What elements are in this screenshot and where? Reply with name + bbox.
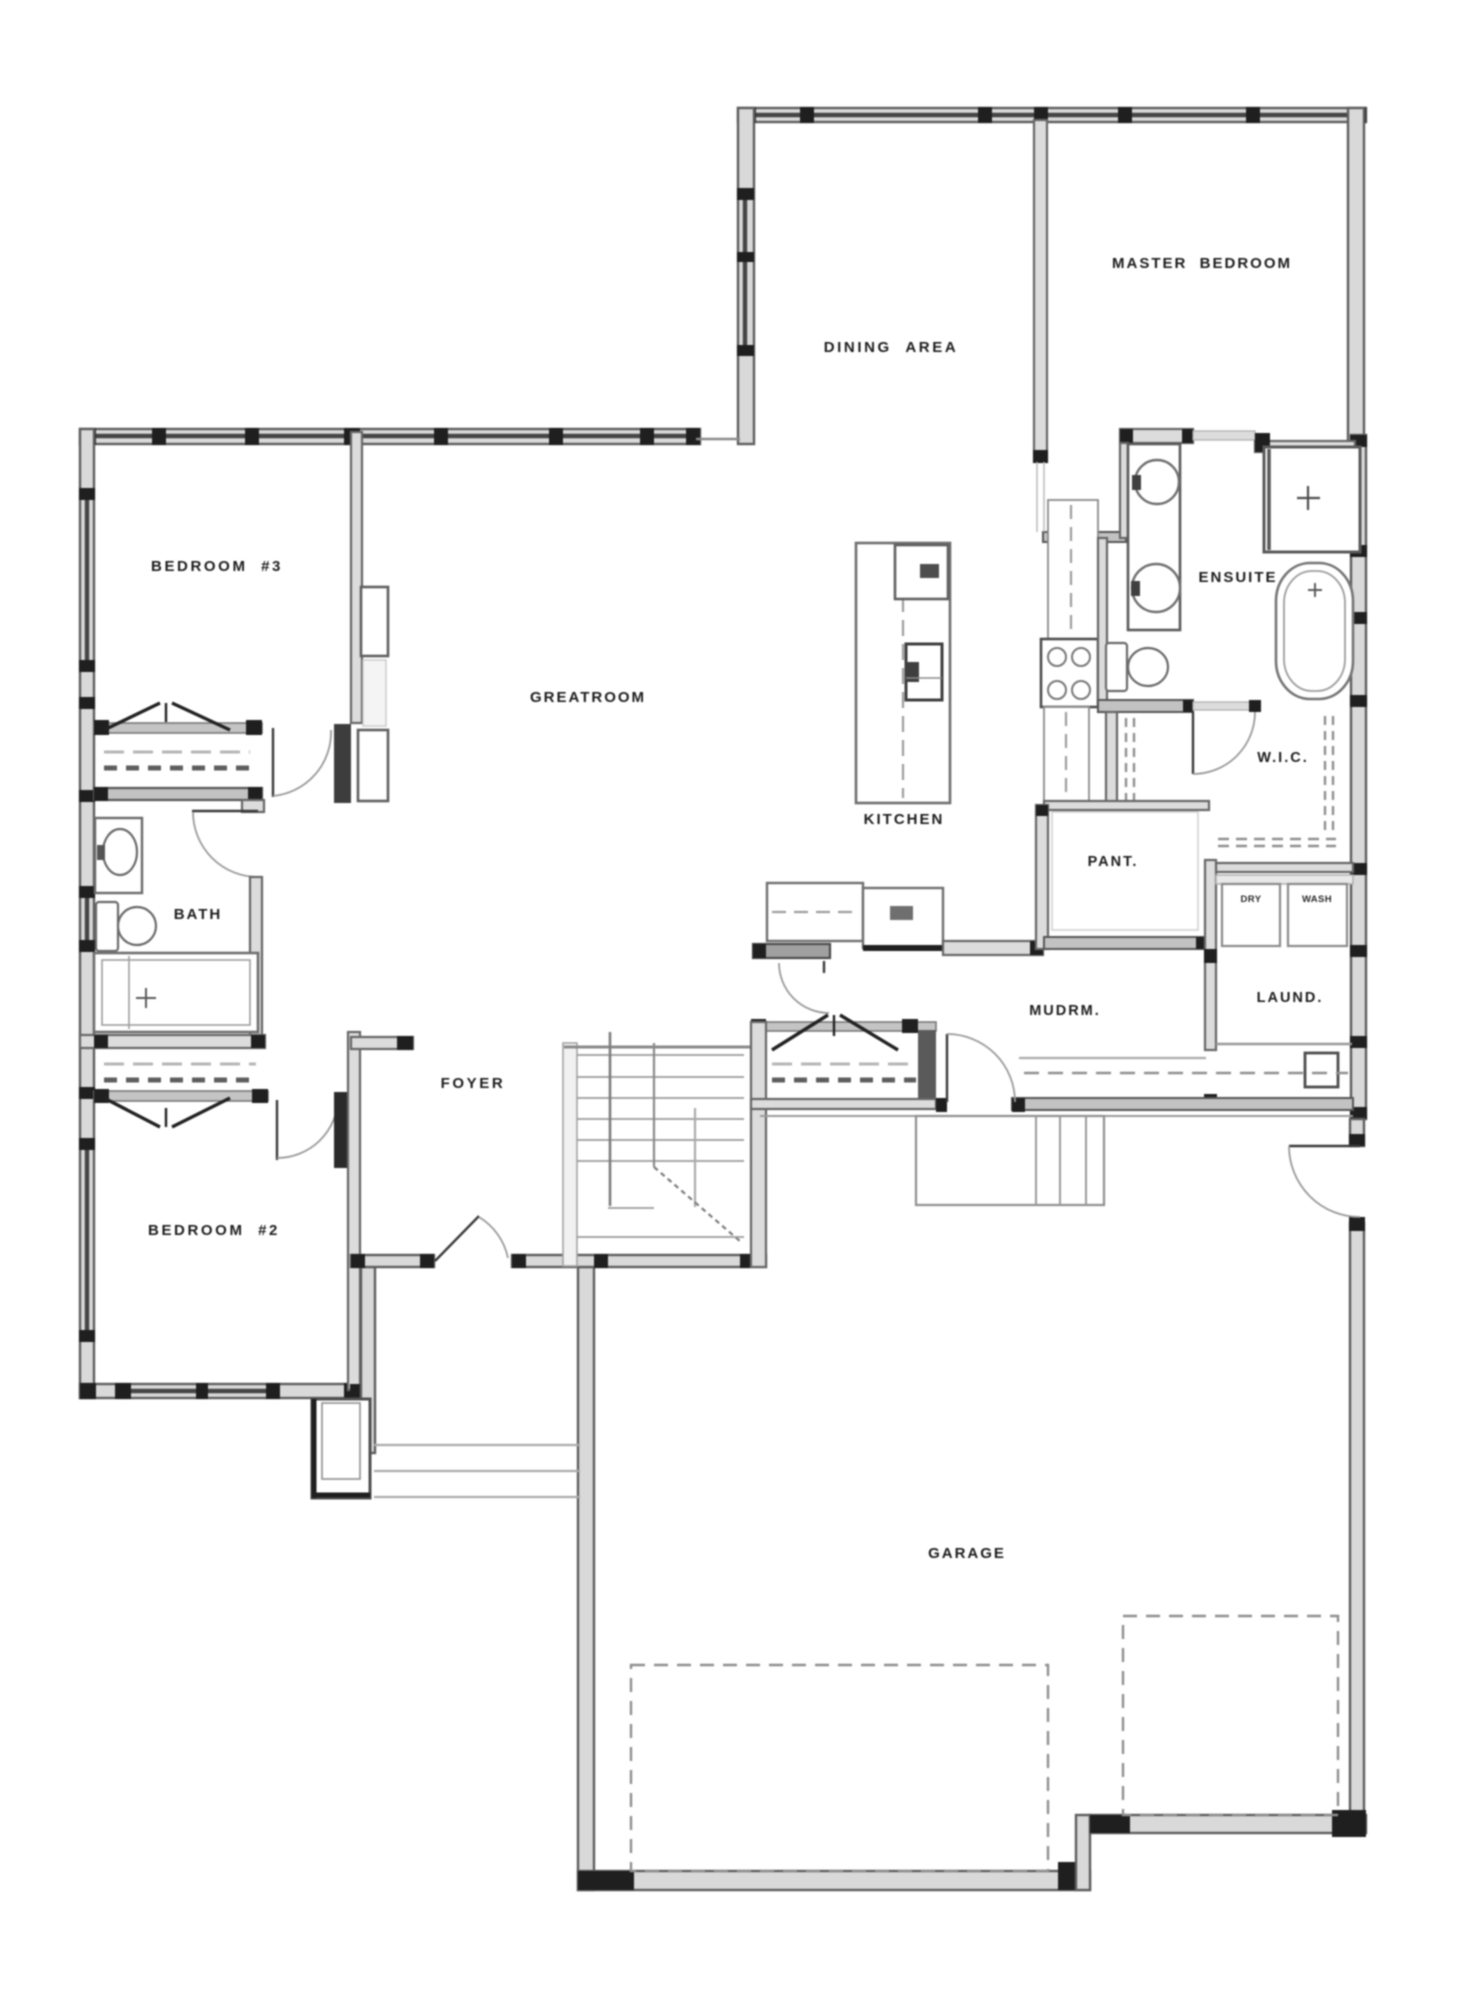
- svg-text:DINING AREA: DINING AREA: [824, 339, 959, 356]
- svg-text:BEDROOM #3: BEDROOM #3: [151, 558, 283, 575]
- svg-text:PANT.: PANT.: [1088, 854, 1139, 870]
- svg-text:ENSUITE: ENSUITE: [1198, 569, 1277, 586]
- svg-text:KITCHEN: KITCHEN: [864, 811, 945, 828]
- svg-text:BATH: BATH: [174, 906, 223, 923]
- svg-text:LAUND.: LAUND.: [1257, 990, 1324, 1006]
- svg-text:GREATROOM: GREATROOM: [530, 689, 646, 706]
- svg-text:WASH: WASH: [1302, 894, 1332, 905]
- svg-text:MUDRM.: MUDRM.: [1029, 1003, 1101, 1019]
- svg-text:DRY: DRY: [1241, 894, 1262, 905]
- svg-text:MASTER BEDROOM: MASTER BEDROOM: [1112, 255, 1292, 272]
- svg-text:W.I.C.: W.I.C.: [1257, 750, 1308, 766]
- svg-text:GARAGE: GARAGE: [928, 1545, 1006, 1562]
- svg-text:BEDROOM #2: BEDROOM #2: [148, 1222, 280, 1239]
- svg-text:FOYER: FOYER: [441, 1075, 506, 1092]
